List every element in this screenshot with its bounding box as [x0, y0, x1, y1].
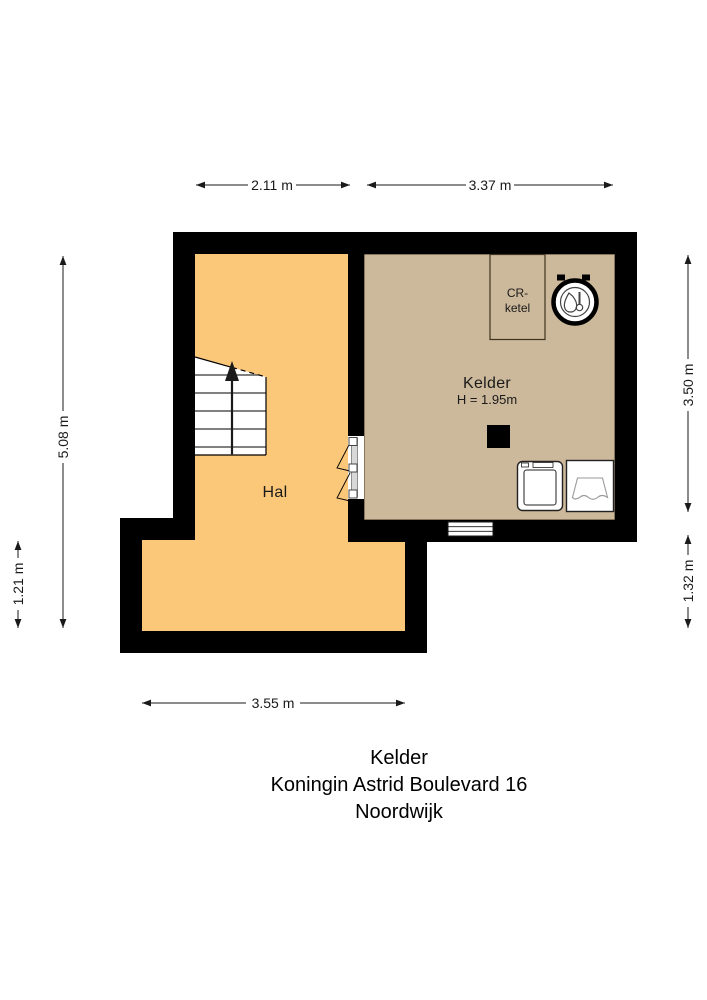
boiler-box-label-1: CR-	[507, 286, 528, 300]
wall-middle-lower	[348, 498, 364, 542]
plan-title: Kelder Koningin Astrid Boulevard 16 Noor…	[271, 747, 528, 823]
dimension-top-hal-label: 2.11 m	[251, 177, 293, 193]
sink-icon	[567, 461, 614, 512]
dimension-right-lower: 1.32 m	[680, 535, 696, 628]
dimension-top-hal: 2.11 m	[196, 177, 350, 193]
floorplan-page: CR- ketel Hal Kelder H = 1.95m 2.11 m 3.…	[0, 0, 707, 1000]
dimension-left-lower: 1.21 m	[10, 541, 26, 628]
title-line-3: Noordwijk	[355, 801, 444, 823]
kelder-height-label: H = 1.95m	[457, 392, 517, 407]
title-line-1: Kelder	[370, 747, 428, 769]
wall-right	[615, 232, 637, 542]
wall-middle-upper	[348, 232, 364, 437]
hal-floor-lower	[142, 540, 405, 631]
washer-icon	[518, 462, 563, 511]
column	[487, 425, 510, 448]
wall-left-upper	[173, 232, 195, 540]
wall-bottom-hal	[120, 631, 427, 653]
kelder-label: Kelder	[463, 375, 511, 392]
dimension-top-kelder-label: 3.37 m	[469, 177, 512, 193]
boiler-box-label-2: ketel	[505, 301, 530, 315]
dimension-right-lower-label: 1.32 m	[680, 560, 696, 603]
dimension-left-lower-label: 1.21 m	[10, 563, 26, 606]
floorplan-svg: CR- ketel Hal Kelder H = 1.95m 2.11 m 3.…	[0, 0, 707, 1000]
dimension-right-kelder: 3.50 m	[680, 255, 696, 512]
dimension-bottom-hal-label: 3.55 m	[252, 695, 295, 711]
window	[448, 522, 493, 536]
dimension-bottom-hal: 3.55 m	[142, 695, 405, 711]
dimension-top-kelder: 3.37 m	[367, 177, 613, 193]
hal-label: Hal	[263, 484, 288, 501]
dimension-right-kelder-label: 3.50 m	[680, 364, 696, 407]
dimension-left-full: 5.08 m	[55, 256, 71, 628]
dimension-left-full-label: 5.08 m	[55, 416, 71, 459]
title-line-2: Koningin Astrid Boulevard 16	[271, 774, 528, 796]
wall-top	[173, 232, 637, 254]
